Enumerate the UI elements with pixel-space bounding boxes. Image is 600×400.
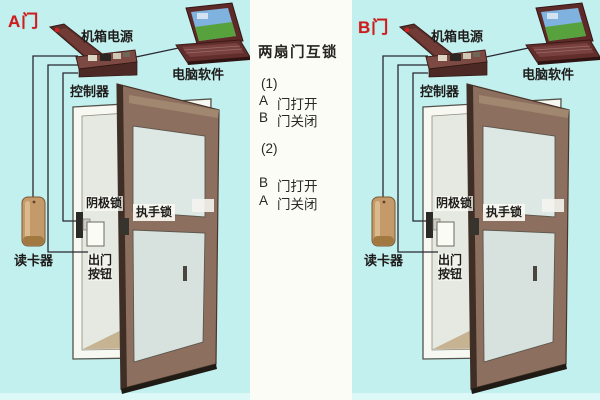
door-b-graphic [350,0,600,400]
exit-button-label-line1: 出门 [88,253,112,267]
interlock-title: 两扇门互锁 [258,41,338,62]
laptop [176,3,250,65]
door-letter: A [259,193,268,213]
door-state: 门关闭 [277,110,318,130]
exit-button-label-line1: 出门 [438,253,462,267]
cathode-lock-label: 阴极锁 [435,196,473,211]
card-reader-label: 读卡器 [14,253,53,268]
door-b-section: B门 机箱电源 电脑软件 控制器 阴极锁 执手锁 读卡器 出门 按钮 [350,0,600,400]
handle-lock-label: 执手锁 [483,204,525,221]
door-state: 门关闭 [277,193,318,213]
exit-button-label: 出门 按钮 [438,253,462,281]
exit-button-label-line2: 按钮 [438,267,462,281]
exit-button-hardware [87,222,104,246]
door-b-title: B门 [358,13,389,38]
software-label: 电脑软件 [522,67,574,82]
door-a-graphic [0,0,250,400]
interlock-diagram: A门 机箱电源 电脑软件 控制器 阴极锁 执手锁 读卡器 出门 按钮 两扇门互锁… [0,0,600,400]
exit-button-hardware [437,222,454,246]
lower-glass-pane [483,230,555,362]
interlock-note-panel: 两扇门互锁 (1) A 门打开 B 门关闭 (2) B 门打开 A 门关闭 [250,0,352,400]
case-2-number: (2) [261,141,278,156]
case-2-line-2: A 门关闭 [259,193,318,213]
case-1-number: (1) [261,76,278,91]
case-1-line-2: B 门关闭 [259,110,318,130]
door-letter: B [259,175,268,195]
handle-lock-hardware [120,218,129,235]
handle-lock-label: 执手锁 [133,204,175,221]
laptop [526,3,600,65]
card-reader-label: 读卡器 [364,253,403,268]
exit-button-label: 出门 按钮 [88,253,112,281]
power-box-label: 机箱电源 [81,29,133,44]
door-a-section: A门 机箱电源 电脑软件 控制器 阴极锁 执手锁 读卡器 出门 按钮 [0,0,250,400]
door-state: 门打开 [277,175,318,195]
handle-lock-hardware [470,218,479,235]
lid-indicator-dot [405,28,410,33]
case-2-line-1: B 门打开 [259,175,318,195]
controller-label: 控制器 [70,84,109,99]
cathode-lock-label: 阴极锁 [85,196,123,211]
card-reader [372,197,395,246]
power-box-label: 机箱电源 [431,29,483,44]
card-reader [22,197,45,246]
exit-button-label-line2: 按钮 [88,267,112,281]
software-label: 电脑软件 [172,67,224,82]
lid-indicator-dot [55,28,60,33]
door-letter: B [259,110,268,130]
lower-glass-pane [133,230,205,362]
controller-label: 控制器 [420,84,459,99]
door-a-title: A门 [8,7,39,32]
